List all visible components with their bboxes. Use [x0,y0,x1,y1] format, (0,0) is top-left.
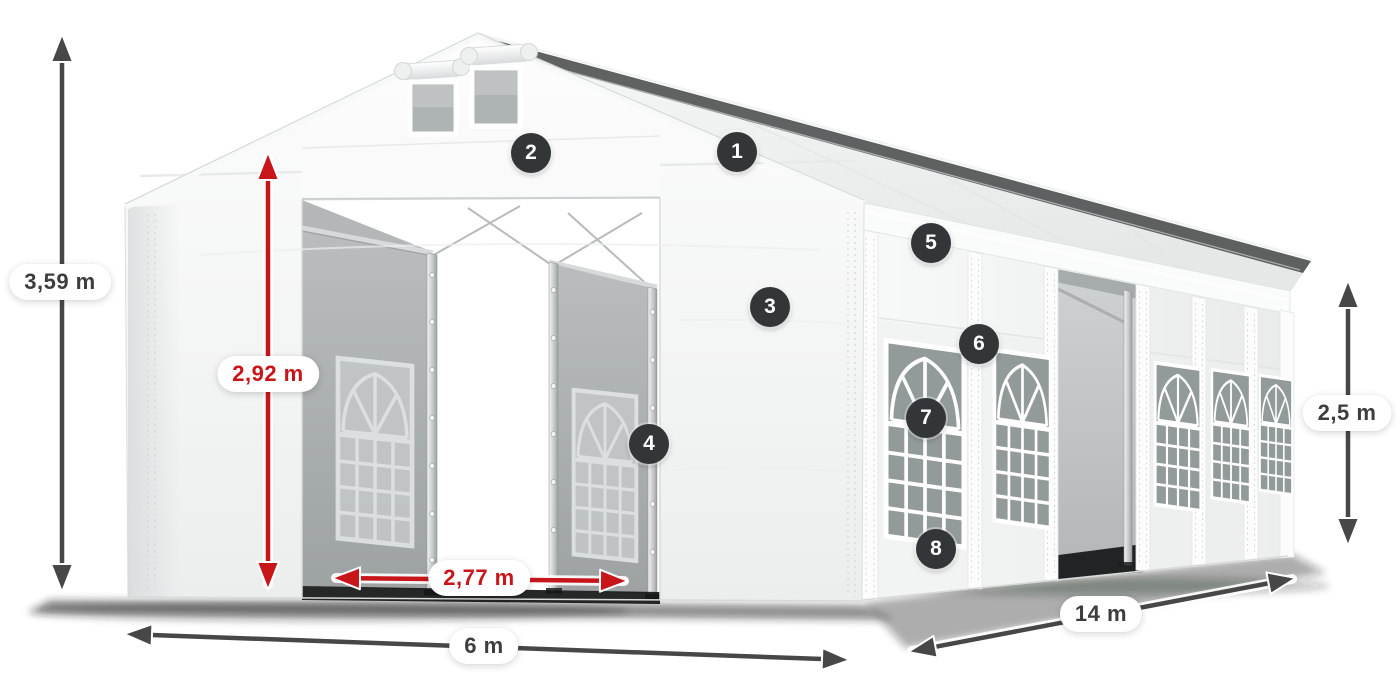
side-window-4 [1212,370,1250,504]
dim-label-total-height: 3,59 m [9,264,111,300]
callout-8-skirt: 8 [916,529,956,569]
side-window-5 [1260,375,1292,494]
callout-4-entrance: 4 [629,424,669,464]
side-window-3 [1155,363,1201,511]
side-window-2 [994,350,1050,528]
callout-2-gable: 2 [511,133,551,173]
tent-interior [302,200,661,604]
side-open-bay [1051,268,1143,580]
callout-7-window: 7 [906,398,946,438]
inner-gate-left [302,228,441,596]
callout-3-front-wall: 3 [750,287,790,327]
side-bay-pole [1124,290,1132,566]
callout-6-strap: 6 [959,324,999,364]
side-window-1 [886,340,964,547]
dim-label-side-height: 2,5 m [1303,395,1392,431]
dim-label-entrance-height: 2,92 m [217,356,319,392]
dim-label-front-width: 6 m [449,628,518,664]
tent-dimension-diagram: 3,59 m 2,92 m 2,77 m 6 m 14 m 2,5 m 1 2 … [0,0,1400,700]
callout-5-side-panel: 5 [911,223,951,263]
dim-label-entrance-width: 2,77 m [428,560,530,596]
dim-label-side-length: 14 m [1060,596,1142,632]
callout-1-roof: 1 [717,132,757,172]
tent-illustration [0,0,1400,700]
